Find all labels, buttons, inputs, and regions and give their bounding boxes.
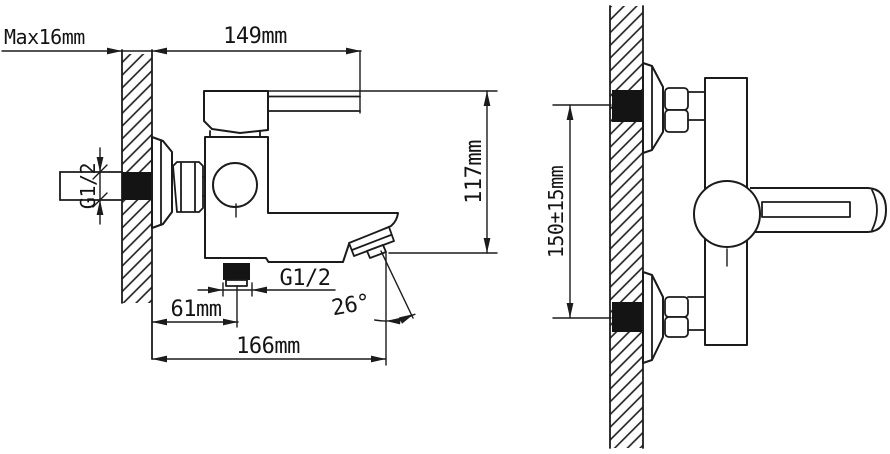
hex-nut-lower-facet bbox=[665, 110, 688, 132]
handle-slot bbox=[762, 202, 850, 217]
dim-outlet-thread-label: G1/2 bbox=[280, 266, 331, 291]
dim-handle-reach-label: 149mm bbox=[223, 24, 287, 49]
dim-body-height-label: 117mm bbox=[462, 140, 487, 204]
hex-nut bbox=[173, 162, 203, 212]
pipe-in-wall-solid bbox=[122, 172, 152, 200]
hex-nut-upper-facet bbox=[665, 88, 688, 110]
hex-nut-lower-facet bbox=[665, 317, 688, 337]
outlet-solid bbox=[223, 263, 250, 280]
top-pipe-solid bbox=[612, 90, 643, 122]
dim-wall-thickness-label: Max16mm bbox=[4, 25, 85, 49]
cartridge-circle bbox=[694, 181, 760, 247]
wall-hatch bbox=[610, 6, 643, 448]
front-wall bbox=[610, 6, 643, 448]
cartridge-circle bbox=[213, 163, 257, 207]
dim-inlet-spacing-label: 150±15mm bbox=[544, 165, 568, 258]
bottom-pipe-solid bbox=[612, 302, 643, 332]
handle-cap bbox=[204, 91, 268, 133]
dim-spout-offset-label: 61mm bbox=[171, 297, 222, 322]
faucet-installation-drawing: Max16mm 149mm 117mm G1/2 bbox=[0, 0, 890, 454]
escutcheon-cone bbox=[152, 137, 172, 228]
drawing-canvas: Max16mm 149mm 117mm G1/2 bbox=[0, 0, 890, 454]
outlet-stub bbox=[226, 280, 247, 286]
dim-total-reach-label: 166mm bbox=[236, 334, 300, 359]
hex-nut-upper-facet bbox=[665, 297, 688, 317]
dim-inlet-thread-label: G1/2 bbox=[76, 163, 100, 209]
